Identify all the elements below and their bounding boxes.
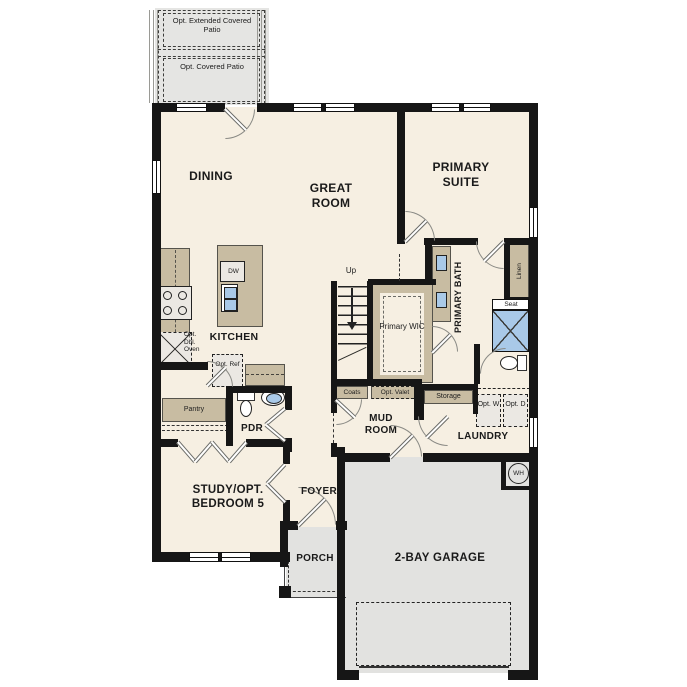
wall (529, 103, 538, 680)
wall (285, 386, 292, 410)
wall (473, 390, 478, 414)
linen-closet: Linen (509, 244, 529, 299)
coats-label: Coats (336, 389, 368, 397)
kitchen-sink (221, 284, 238, 312)
wall (474, 344, 480, 384)
shower (492, 310, 529, 352)
laundry-label: LAUNDRY (448, 431, 518, 443)
primary-bath-label: PRIMARY BATH (452, 258, 478, 336)
wall (423, 453, 538, 462)
sink-basin (224, 299, 237, 311)
window (431, 103, 460, 112)
wic-label: Primary WIC (379, 322, 425, 331)
covered-patio-label: Opt. Covered Patio (164, 63, 260, 72)
powder-sink-basin (266, 393, 282, 404)
opt-wd-dashed (478, 388, 530, 389)
window (529, 417, 538, 448)
mudroom-opening-dashed (333, 413, 334, 443)
wall (331, 281, 337, 380)
hall-opening-dashed (399, 254, 400, 281)
porch-column (279, 586, 291, 598)
wall (228, 386, 292, 393)
wall (367, 281, 373, 380)
wall (226, 386, 233, 446)
opt-counter-line (246, 374, 284, 375)
wall (337, 670, 359, 680)
shower-seat: Seat (492, 299, 529, 310)
powder-toilet-bowl (240, 400, 252, 417)
window (529, 207, 538, 238)
opt-washer (476, 394, 501, 427)
window (176, 103, 207, 112)
window (325, 103, 355, 112)
wall (280, 525, 288, 567)
garage-apron-dashed (356, 602, 511, 666)
wall (152, 362, 208, 370)
burner-icon (178, 291, 187, 300)
opt-dryer (503, 394, 528, 427)
wc-toilet-tank (517, 355, 527, 371)
opt-washer-label: Opt. W (477, 401, 500, 409)
wall (368, 279, 436, 285)
dining-label: DINING (176, 169, 246, 184)
cooktop (158, 286, 192, 320)
kitchen-label: KITCHEN (203, 331, 265, 344)
porch-label: PORCH (288, 553, 342, 565)
wall (504, 238, 530, 245)
window (152, 160, 161, 194)
window (293, 103, 322, 112)
burner-icon (163, 306, 172, 315)
window (463, 103, 491, 112)
floor-plan: Opt. Extended Covered Patio Opt. Covered… (0, 0, 687, 687)
storage-label: Storage (424, 393, 473, 401)
up-arrowhead (347, 322, 357, 330)
patio-divider (158, 49, 265, 57)
wall (331, 379, 422, 386)
wall (337, 453, 390, 462)
study-label: STUDY/OPT. BEDROOM 5 (160, 483, 296, 511)
wall (152, 439, 178, 447)
wall (397, 103, 405, 234)
up-label: Up (336, 266, 366, 275)
garage-door-line (359, 666, 509, 668)
window (221, 552, 251, 562)
window (189, 552, 219, 562)
wall (419, 384, 478, 390)
vanity-sink (436, 255, 447, 271)
wic-dashed (383, 296, 421, 372)
extended-patio-label: Opt. Extended Covered Patio (168, 17, 256, 35)
garage-label: 2-BAY GARAGE (394, 551, 486, 565)
great-room-label: GREAT ROOM (291, 181, 371, 210)
opt-counter (245, 364, 285, 386)
wall (504, 242, 510, 302)
pantry-label: Pantry (164, 406, 224, 414)
up-arrow (351, 288, 353, 324)
wall (508, 670, 538, 680)
foyer-label: FOYER (294, 486, 344, 498)
sink-basin (224, 287, 237, 299)
primary-suite-label: PRIMARY SUITE (416, 160, 506, 189)
vanity-sink (436, 292, 447, 308)
dishwasher: DW (220, 261, 245, 282)
opt-dryer-label: Opt. D (504, 401, 527, 409)
opt-valet-label: Opt. Valet (371, 389, 419, 397)
burner-icon (178, 306, 187, 315)
seat-label: Seat (493, 301, 529, 309)
burner-icon (163, 291, 172, 300)
dishwasher-label: DW (221, 268, 246, 276)
pantry-dashed (162, 425, 228, 431)
water-heater-label: WH (508, 470, 529, 478)
wall (283, 439, 290, 464)
wall (425, 238, 432, 285)
